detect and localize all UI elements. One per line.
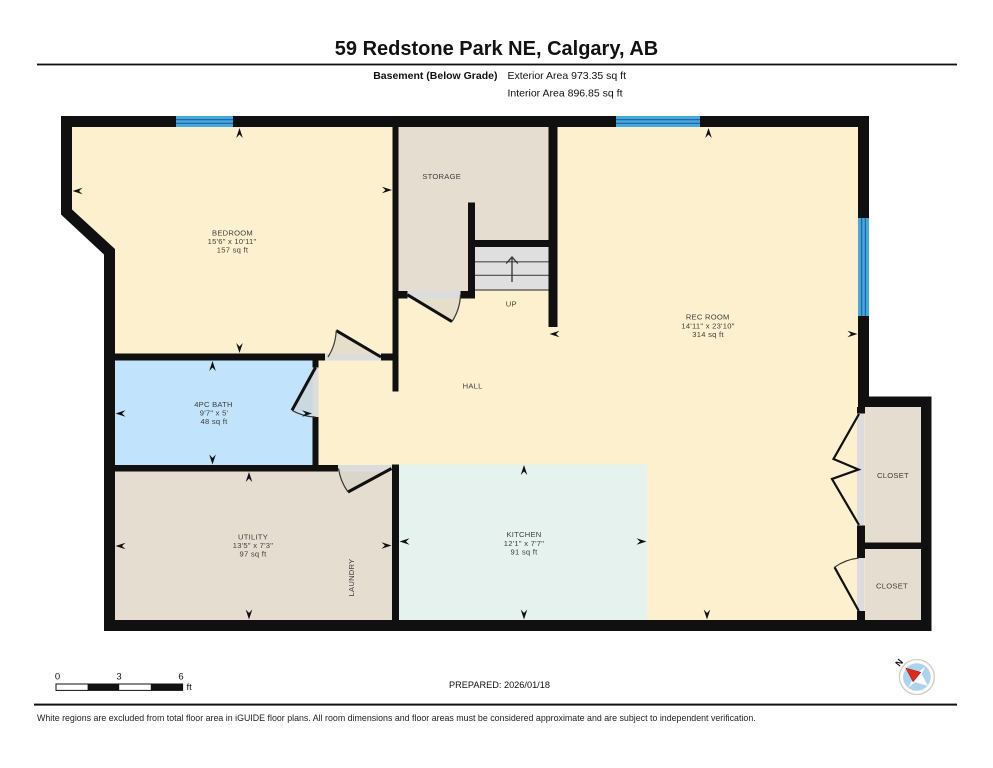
svg-text:CLOSET: CLOSET bbox=[876, 582, 908, 591]
svg-text:6: 6 bbox=[178, 672, 183, 683]
svg-text:91 sq ft: 91 sq ft bbox=[511, 547, 539, 556]
svg-text:48 sq ft: 48 sq ft bbox=[201, 417, 229, 426]
svg-text:314 sq ft: 314 sq ft bbox=[692, 330, 724, 339]
svg-text:KITCHEN: KITCHEN bbox=[506, 530, 541, 539]
svg-text:LAUNDRY: LAUNDRY bbox=[347, 559, 356, 597]
svg-text:STORAGE: STORAGE bbox=[422, 172, 461, 181]
svg-text:Basement (Below Grade): Basement (Below Grade) bbox=[373, 70, 497, 82]
svg-text:3: 3 bbox=[116, 672, 121, 683]
svg-text:0: 0 bbox=[55, 672, 60, 683]
svg-text:White regions are excluded fro: White regions are excluded from total fl… bbox=[37, 713, 756, 723]
svg-text:REC ROOM: REC ROOM bbox=[686, 313, 730, 322]
svg-text:Interior Area 896.85 sq ft: Interior Area 896.85 sq ft bbox=[508, 88, 623, 100]
svg-text:UP: UP bbox=[506, 299, 517, 308]
svg-text:Exterior Area 973.35 sq ft: Exterior Area 973.35 sq ft bbox=[508, 70, 627, 82]
svg-text:PREPARED: 2026/01/18: PREPARED: 2026/01/18 bbox=[449, 680, 550, 690]
svg-text:ft: ft bbox=[187, 682, 193, 693]
svg-text:97 sq ft: 97 sq ft bbox=[240, 549, 268, 558]
svg-text:59 Redstone Park NE, Calgary,: 59 Redstone Park NE, Calgary, AB bbox=[335, 38, 658, 60]
svg-text:HALL: HALL bbox=[463, 382, 483, 391]
svg-text:CLOSET: CLOSET bbox=[877, 471, 909, 480]
svg-text:157 sq ft: 157 sq ft bbox=[217, 245, 249, 254]
